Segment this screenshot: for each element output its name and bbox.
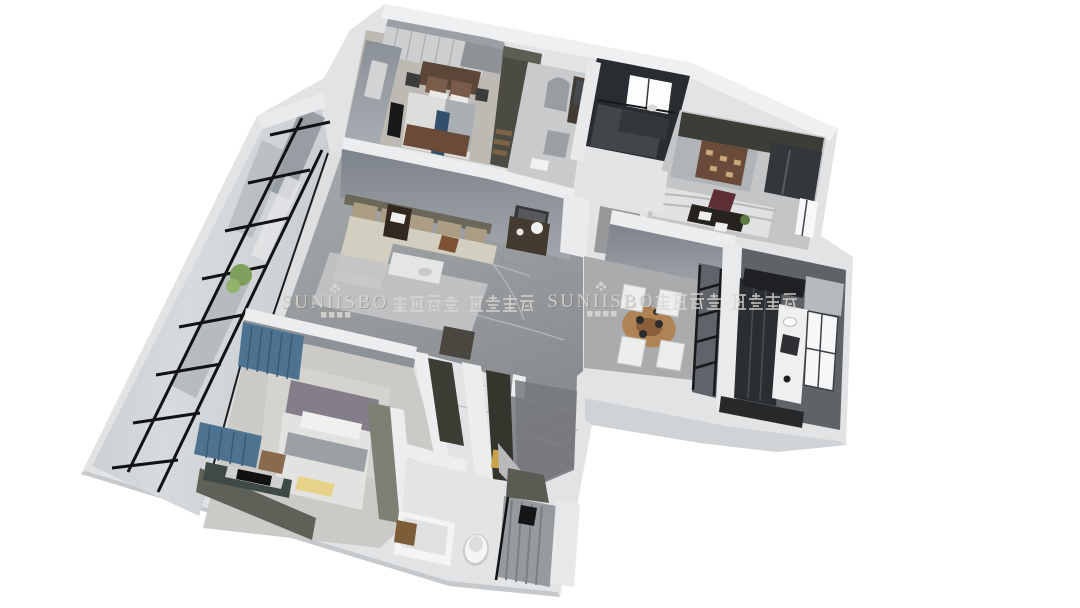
svg-text:SUNIISBO: SUNIISBO bbox=[547, 291, 655, 312]
svg-text:SUNIISBO: SUNIISBO bbox=[281, 292, 389, 313]
